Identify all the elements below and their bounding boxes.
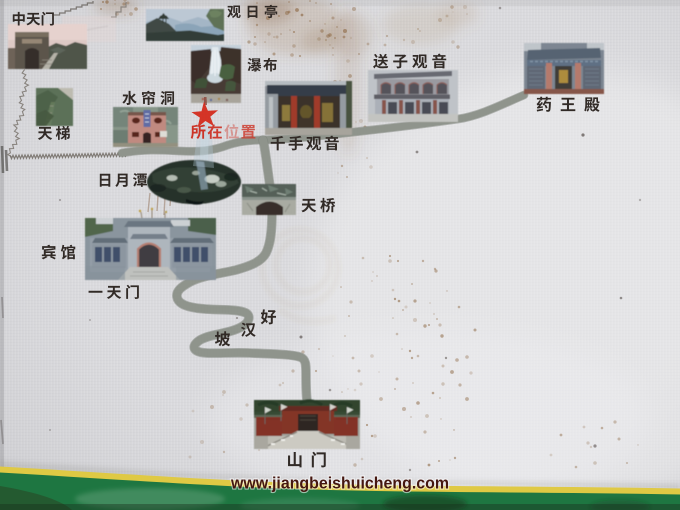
svg-text:www.jiangbeishuicheng.com: www.jiangbeishuicheng.com <box>230 475 449 493</box>
